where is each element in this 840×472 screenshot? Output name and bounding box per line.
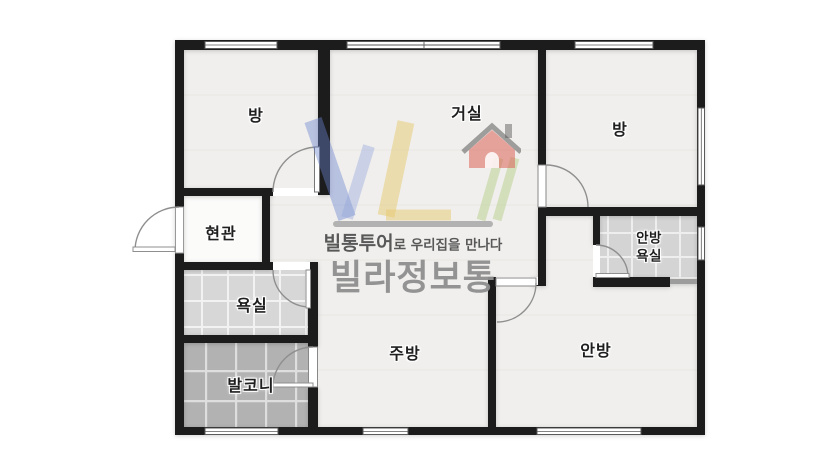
room-label-room2: 방 (612, 116, 628, 140)
wall-entrance-right (262, 196, 270, 265)
room-label-room1: 방 (248, 102, 264, 126)
room-label-bathroom: 욕실 (236, 292, 267, 316)
window-room2-right (698, 108, 705, 185)
room-label-master-bedroom: 안방 (580, 337, 611, 361)
window-room2-top (575, 42, 653, 49)
master-bathroom-label-line2: 욕실 (636, 248, 662, 266)
room-label-kitchen: 주방 (389, 340, 420, 364)
floorplan-page: 방 거실 방 현관 욕실 발코니 주방 안방 안방 욕실 (0, 0, 840, 472)
master-bathroom-label-line1: 안방 (636, 230, 662, 248)
wall-bathroom-top-left (184, 262, 273, 270)
room-label-master-bathroom: 안방 욕실 (636, 230, 662, 265)
window-master-bottom (537, 428, 641, 435)
partition-master-bathroom (670, 279, 697, 284)
room-label-balcony: 발코니 (227, 372, 274, 396)
room-label-entrance: 현관 (205, 220, 236, 244)
window-room1-top (205, 42, 277, 49)
door-entrance (133, 207, 184, 253)
wall-master-bathroom-bottom (593, 277, 670, 287)
wall-alcove-left (538, 216, 546, 285)
wall-room1-bottom (184, 188, 273, 196)
window-living-top (347, 42, 500, 49)
room-label-living: 거실 (451, 100, 482, 124)
window-kitchen-bottom (363, 428, 408, 435)
wall-living-room2 (538, 50, 546, 165)
wall-room2-bottom (538, 207, 705, 216)
wall-bathroom-balcony (184, 335, 308, 343)
window-balcony-bottom (205, 428, 278, 435)
wall-balcony-right (308, 387, 318, 435)
floorplan: 방 거실 방 현관 욕실 발코니 주방 안방 안방 욕실 (175, 40, 705, 435)
wall-master-bathroom-left (593, 216, 600, 245)
wall-kitchen-master (488, 277, 496, 435)
window-master-bathroom-right (698, 227, 705, 260)
